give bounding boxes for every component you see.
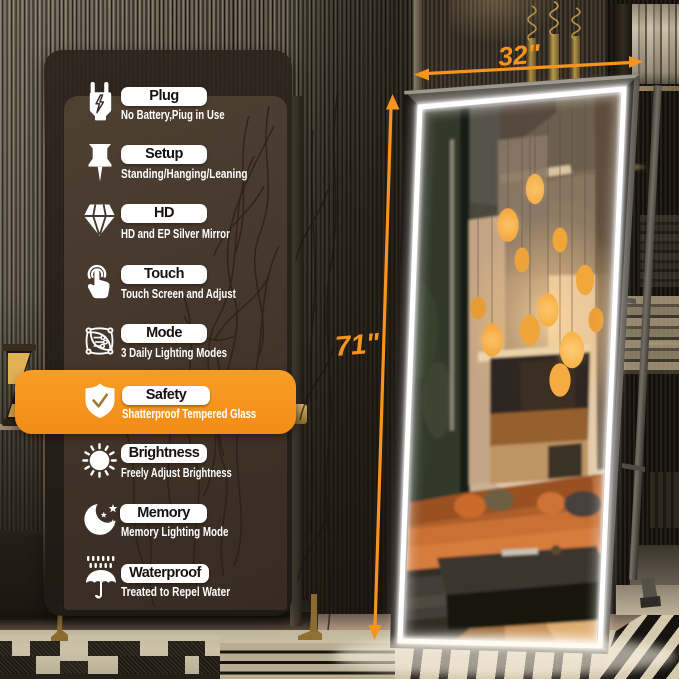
svg-text:71": 71" [334,327,382,362]
svg-text:32": 32" [497,38,542,72]
